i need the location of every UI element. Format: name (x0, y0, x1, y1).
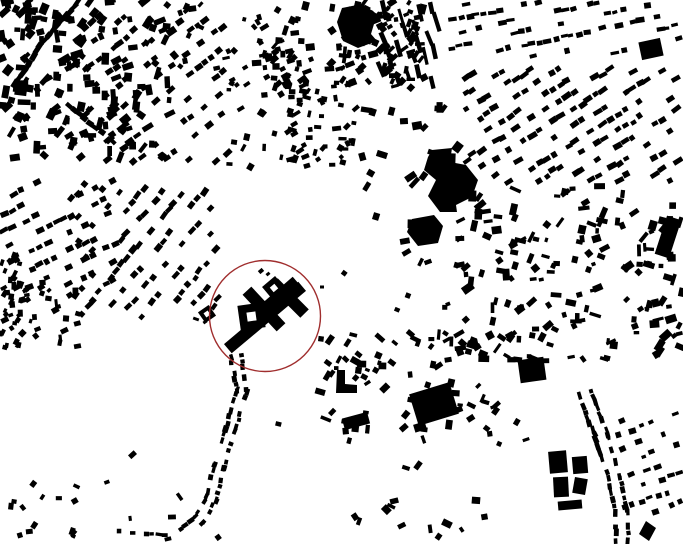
building (9, 154, 20, 162)
building (208, 474, 214, 480)
building (133, 90, 140, 96)
building (127, 16, 132, 22)
building (569, 186, 575, 191)
building (69, 137, 77, 146)
building (98, 26, 105, 33)
building (338, 137, 346, 141)
building (455, 236, 464, 241)
building (48, 128, 57, 134)
building (272, 63, 279, 70)
building (226, 162, 232, 166)
building (532, 327, 539, 332)
building (481, 513, 488, 520)
building (252, 60, 262, 67)
building (445, 420, 453, 430)
building (631, 316, 637, 323)
building (53, 45, 63, 53)
building (67, 84, 72, 92)
building (9, 301, 15, 308)
building (626, 531, 631, 536)
building (612, 503, 617, 508)
building (621, 47, 628, 53)
building (18, 99, 31, 105)
building (12, 321, 17, 326)
building (112, 27, 118, 35)
landmark-se-cross-block-d (572, 477, 588, 495)
building (117, 529, 122, 534)
building (56, 496, 62, 500)
building (103, 122, 109, 130)
building (162, 533, 168, 537)
building (648, 301, 653, 308)
building (280, 51, 285, 58)
building (271, 75, 278, 81)
building (84, 133, 96, 138)
building (626, 509, 630, 516)
building (614, 538, 618, 544)
building (527, 354, 532, 358)
building (408, 371, 413, 378)
building (246, 311, 256, 321)
landmark-southeast-square-hall (518, 357, 547, 383)
building (558, 21, 565, 26)
building (613, 509, 618, 517)
building (645, 247, 654, 251)
building (649, 320, 659, 328)
building (297, 98, 303, 103)
building (400, 118, 408, 125)
building (314, 125, 321, 129)
building (329, 163, 335, 167)
building (130, 531, 135, 535)
building (306, 135, 313, 140)
building (144, 532, 149, 537)
building (664, 26, 669, 30)
building (594, 183, 605, 189)
building (11, 282, 16, 290)
building (472, 497, 481, 505)
building (336, 43, 342, 50)
building (33, 141, 40, 154)
building (428, 337, 434, 341)
building (518, 28, 525, 34)
building (149, 532, 154, 535)
building (478, 355, 489, 362)
building (231, 375, 237, 382)
building (320, 286, 324, 289)
building (128, 516, 132, 521)
building (517, 336, 522, 343)
building (305, 43, 315, 51)
building (331, 84, 337, 88)
building (551, 292, 562, 298)
building (10, 276, 15, 282)
building (614, 529, 619, 537)
building (321, 96, 328, 102)
building (625, 537, 629, 544)
building (295, 16, 301, 21)
building (491, 226, 502, 235)
building (547, 270, 555, 274)
building (14, 27, 20, 32)
figure-ground-map (0, 0, 683, 544)
building (107, 146, 112, 156)
building (110, 89, 116, 101)
building (218, 477, 223, 483)
building (529, 332, 536, 339)
building (83, 74, 91, 81)
building (349, 138, 355, 143)
building (168, 514, 176, 519)
building (263, 53, 272, 57)
building (104, 0, 114, 6)
building (334, 366, 339, 370)
building (59, 31, 67, 37)
building (262, 144, 266, 151)
building (289, 89, 296, 94)
building (288, 95, 294, 100)
building (8, 503, 14, 510)
building (8, 293, 14, 300)
building (659, 264, 664, 268)
building (20, 28, 25, 40)
building (464, 272, 469, 277)
building (164, 76, 170, 88)
building (365, 425, 370, 434)
building (669, 202, 676, 209)
building (355, 367, 362, 374)
building (318, 336, 324, 342)
building (64, 117, 69, 124)
building (626, 523, 630, 530)
building (609, 341, 618, 349)
building (296, 60, 302, 67)
building (290, 30, 299, 36)
building (378, 362, 386, 369)
building (394, 17, 399, 22)
building (496, 8, 504, 14)
building (302, 80, 309, 86)
building (434, 105, 441, 111)
building (240, 359, 245, 364)
building (72, 288, 78, 294)
building (319, 114, 324, 118)
building (595, 228, 599, 234)
building (666, 304, 672, 309)
building (607, 483, 612, 490)
building (308, 127, 313, 132)
building (14, 87, 27, 96)
building (324, 66, 334, 72)
building (0, 101, 6, 108)
building (261, 92, 268, 98)
building (620, 6, 627, 12)
building (24, 116, 29, 122)
landmark-se-cross-block-b (572, 456, 588, 474)
figure-ground-map-page (0, 0, 683, 544)
building (45, 295, 52, 301)
building (53, 72, 59, 78)
building (239, 353, 244, 358)
building (554, 194, 560, 198)
building (32, 314, 37, 320)
building (634, 331, 640, 334)
building (343, 46, 347, 54)
building (167, 97, 172, 103)
building (84, 80, 95, 87)
building (134, 101, 141, 113)
landmark-se-cross-block-a (548, 450, 568, 473)
building (232, 371, 237, 377)
building (583, 29, 591, 35)
building (231, 139, 238, 145)
landmark-se-cross-block-c (553, 477, 569, 498)
building (227, 88, 232, 92)
building (618, 476, 622, 480)
building (491, 302, 495, 313)
building (242, 374, 247, 381)
building (26, 529, 33, 535)
building (637, 244, 641, 256)
building (20, 125, 27, 132)
building (298, 38, 305, 44)
building (536, 40, 542, 46)
building (468, 276, 475, 285)
building (63, 315, 69, 321)
building (644, 2, 651, 9)
building (263, 65, 268, 70)
building (521, 1, 528, 7)
building (636, 262, 643, 267)
building (31, 102, 36, 109)
building (334, 81, 339, 85)
